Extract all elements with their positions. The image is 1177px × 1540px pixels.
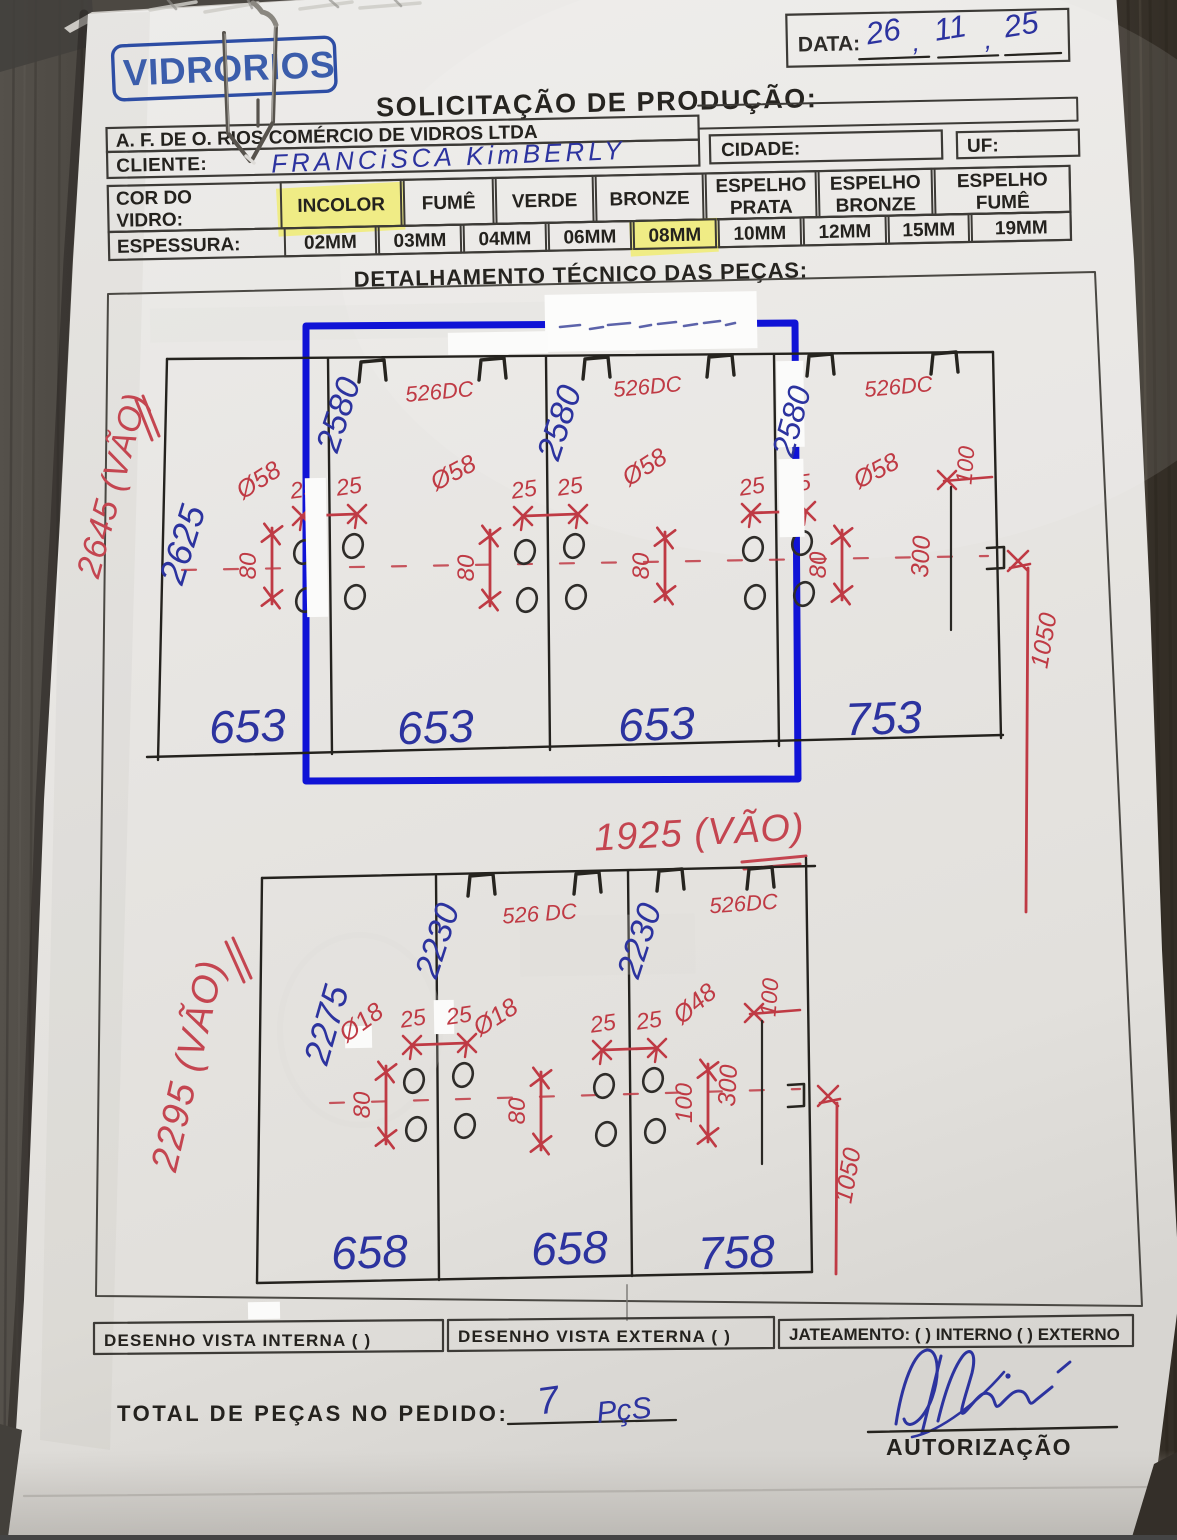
svg-text:653: 653 [208, 699, 287, 754]
svg-text:FUMÊ: FUMÊ [421, 191, 475, 214]
svg-text:25: 25 [443, 1000, 473, 1029]
svg-text:PçS: PçS [595, 1391, 653, 1430]
svg-text:25: 25 [554, 471, 584, 500]
svg-text:,: , [985, 24, 993, 54]
svg-text:753: 753 [844, 691, 923, 746]
svg-text:INCOLOR: INCOLOR [297, 194, 385, 217]
svg-text:25: 25 [333, 471, 363, 500]
svg-text:25: 25 [587, 1008, 617, 1037]
svg-text:TOTAL DE PEÇAS NO PEDIDO:: TOTAL DE PEÇAS NO PEDIDO: [117, 1401, 508, 1426]
svg-text:CIDADE:: CIDADE: [721, 138, 801, 161]
svg-text:26: 26 [862, 11, 903, 51]
svg-text:,: , [913, 27, 921, 57]
svg-text:BRONZE: BRONZE [609, 188, 690, 211]
svg-text:653: 653 [396, 700, 475, 755]
svg-text:10MM: 10MM [733, 223, 786, 245]
svg-text:80: 80 [235, 552, 262, 579]
svg-text:CLIENTE:: CLIENTE: [116, 154, 207, 177]
svg-text:80: 80 [349, 1091, 376, 1118]
svg-text:80: 80 [504, 1097, 531, 1124]
svg-text:DESENHO VISTA EXTERNA ( ): DESENHO VISTA EXTERNA ( ) [458, 1327, 731, 1346]
svg-text:02MM: 02MM [304, 232, 357, 254]
svg-text:06MM: 06MM [563, 226, 616, 248]
svg-text:AUTORIZAÇÃO: AUTORIZAÇÃO [886, 1433, 1072, 1460]
svg-text:PRATA: PRATA [730, 197, 793, 219]
svg-text:11: 11 [931, 8, 968, 48]
svg-text:526 DC: 526 DC [501, 898, 577, 928]
svg-text:DATA:: DATA: [798, 32, 861, 56]
svg-text:UF:: UF: [967, 135, 999, 157]
svg-text:100: 100 [671, 1082, 698, 1123]
svg-text:80: 80 [628, 552, 655, 579]
svg-text:JATEAMENTO: ( ) INTERNO ( ): JATEAMENTO: ( ) INTERNO ( ) EXTERNO [789, 1325, 1120, 1344]
svg-text:80: 80 [453, 554, 480, 581]
svg-text:04MM: 04MM [478, 228, 531, 250]
svg-text:VERDE: VERDE [512, 190, 578, 212]
svg-text:VIDRO:: VIDRO: [116, 209, 183, 231]
svg-text:25: 25 [508, 474, 538, 503]
svg-text:ESPELHO: ESPELHO [830, 172, 921, 195]
svg-text:FUMÊ: FUMÊ [976, 191, 1030, 214]
svg-text:COR DO: COR DO [116, 187, 192, 210]
svg-text:19MM: 19MM [995, 217, 1048, 239]
svg-text:658: 658 [530, 1221, 609, 1276]
svg-text:03MM: 03MM [393, 230, 446, 252]
svg-text:DESENHO VISTA INTERNA ( ): DESENHO VISTA INTERNA ( ) [104, 1331, 371, 1350]
svg-text:15MM: 15MM [902, 219, 955, 241]
svg-text:12MM: 12MM [818, 221, 871, 243]
svg-text:526DC: 526DC [708, 889, 778, 919]
svg-text:653: 653 [617, 697, 696, 752]
svg-text:BRONZE: BRONZE [835, 194, 916, 217]
svg-text:300: 300 [713, 1064, 743, 1107]
svg-text:ESPELHO: ESPELHO [715, 174, 806, 197]
svg-text:ESPESSURA:: ESPESSURA: [117, 234, 241, 258]
svg-text:25: 25 [633, 1005, 663, 1034]
svg-text:658: 658 [330, 1225, 409, 1280]
svg-text:25: 25 [1000, 4, 1041, 44]
svg-text:25: 25 [397, 1003, 427, 1032]
svg-text:758: 758 [697, 1225, 776, 1280]
svg-text:80: 80 [805, 551, 832, 578]
svg-text:25: 25 [736, 471, 766, 500]
svg-text:ESPELHO: ESPELHO [957, 169, 1048, 192]
svg-text:300: 300 [906, 535, 936, 578]
svg-text:08MM: 08MM [648, 225, 701, 247]
